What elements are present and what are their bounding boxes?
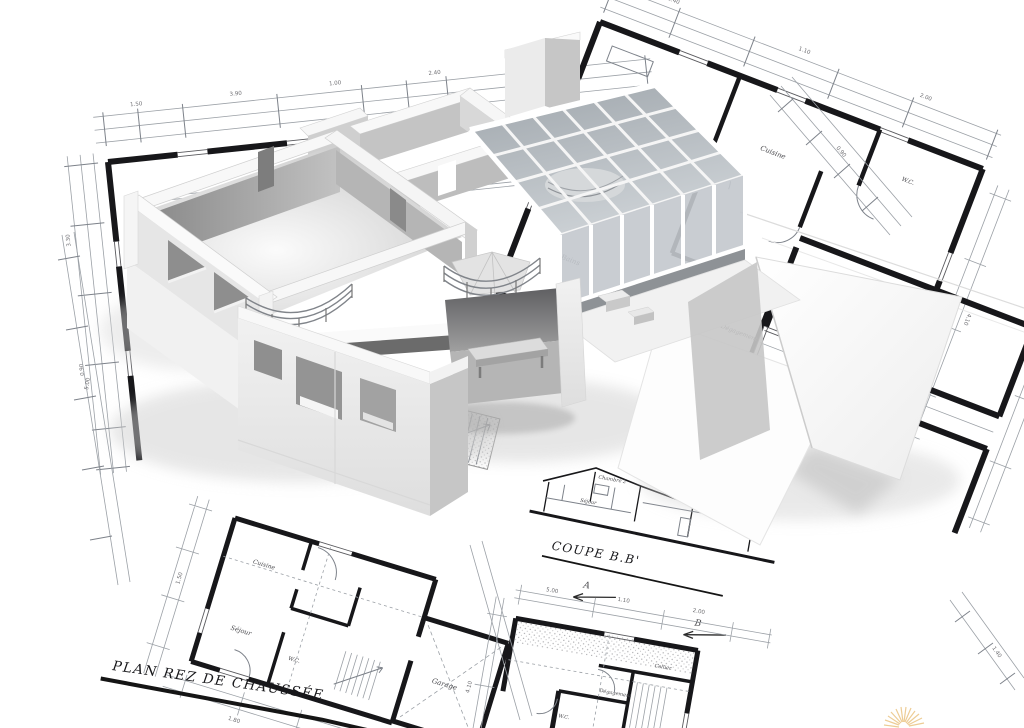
plan-title: PLAN REZ DE CHAUSSÉE <box>110 658 325 704</box>
logo-sunburst <box>884 707 924 727</box>
room-label-garage: Garage <box>431 677 458 692</box>
blueprint-partition <box>268 541 369 702</box>
dimension-label: 1.40 <box>990 646 1002 660</box>
dimension-label: 2.40 <box>428 70 441 77</box>
doorway <box>258 146 274 192</box>
room-label-cuisine: Cuisine <box>252 558 276 571</box>
render-canvas: 1.50 3.90 1.00 2.40 1.80 3.30 0.90 2.40 … <box>0 0 1024 728</box>
block-side-face <box>430 368 468 516</box>
dimension-label: 2.40 <box>667 0 681 6</box>
dimension-label: 4.10 <box>465 680 474 694</box>
room-label-wc: W.C. <box>287 656 301 665</box>
room-label-chambre2: Chambre 2 <box>598 475 627 486</box>
corner-post <box>124 191 138 269</box>
room-label-sejour: Séjour <box>580 497 598 507</box>
dimension-label: 0.90 <box>834 145 847 159</box>
dimension-label: 1.10 <box>797 46 811 56</box>
architectural-render: 1.50 3.90 1.00 2.40 1.80 3.30 0.90 2.40 … <box>0 0 1024 728</box>
section-title: COUPE B.B' <box>551 539 642 568</box>
room-label-sejour: Séjour <box>230 624 254 638</box>
dimension-label: 4.10 <box>962 313 972 327</box>
dimension-label: 3.30 <box>65 233 72 246</box>
dimension-label: 2.00 <box>919 93 933 103</box>
section-arrow-b <box>683 628 726 644</box>
tall-wall-face <box>505 38 545 118</box>
dimension-label: 5.00 <box>84 377 92 391</box>
dimension-label: 5.00 <box>546 587 560 595</box>
dimension-label: 1.50 <box>175 571 184 585</box>
dimension-label: 3.90 <box>229 91 242 98</box>
room-label-wc: W.C. <box>558 713 570 721</box>
blueprint-sheet-bottom-left: Garage Séjour Cuisine W.C. 1.50 1.80 1.4… <box>132 494 535 728</box>
room-label-wc: W.C. <box>900 176 915 187</box>
dimension-label: 1.10 <box>617 597 631 605</box>
dimension-label: 1.50 <box>130 101 143 108</box>
plan-title-block: PLAN REZ DE CHAUSSÉE A <box>94 657 410 728</box>
dimension-label: 1.80 <box>227 716 241 725</box>
dimension-label: 1.00 <box>329 80 342 87</box>
section-marker-a: A <box>582 580 592 591</box>
section-marker-b: B <box>693 618 703 629</box>
dimension-label: 2.00 <box>692 608 706 616</box>
room-label-cuisine: Cuisine <box>759 144 787 161</box>
